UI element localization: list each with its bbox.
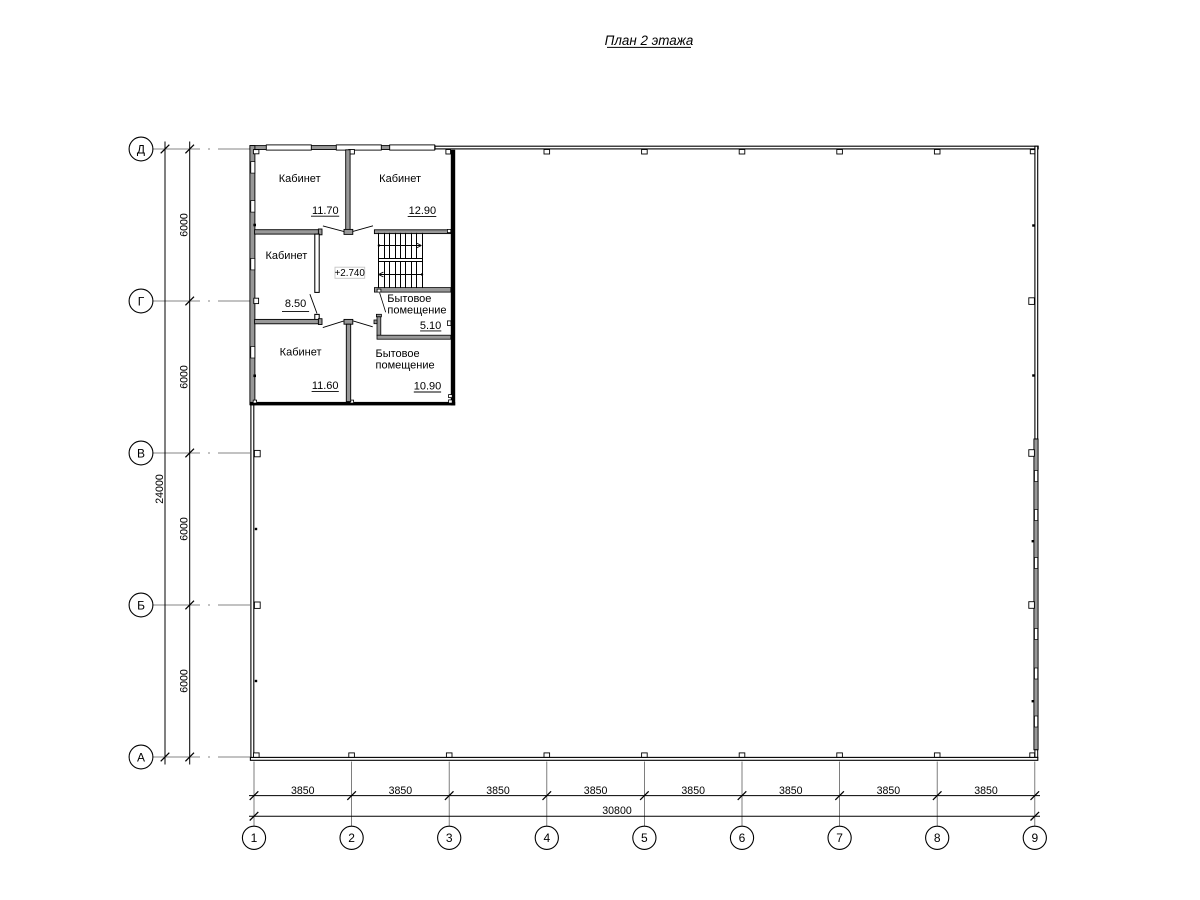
svg-text:6: 6 [739,831,746,845]
svg-text:3850: 3850 [681,785,705,797]
svg-text:6000: 6000 [178,365,190,389]
svg-text:24000: 24000 [154,474,166,504]
svg-text:4: 4 [543,831,550,845]
svg-text:2: 2 [348,831,355,845]
svg-text:Б: Б [137,598,145,612]
svg-text:Кабинет: Кабинет [279,173,321,185]
svg-text:10.90: 10.90 [414,380,442,392]
svg-text:6000: 6000 [178,669,190,693]
svg-text:8.50: 8.50 [285,298,306,310]
svg-text:Кабинет: Кабинет [265,250,307,262]
svg-text:3: 3 [446,831,453,845]
svg-text:3850: 3850 [389,785,413,797]
svg-text:Кабинет: Кабинет [379,173,421,185]
svg-text:3850: 3850 [877,785,901,797]
svg-text:8: 8 [934,831,941,845]
svg-text:7: 7 [836,831,843,845]
svg-text:9: 9 [1031,831,1038,845]
svg-text:В: В [137,446,145,460]
svg-text:Г: Г [138,294,145,308]
svg-text:3850: 3850 [486,785,510,797]
svg-text:11.70: 11.70 [312,205,339,217]
svg-text:План 2 этажа: План 2 этажа [605,33,694,48]
svg-text:Бытовое: Бытовое [376,348,420,360]
svg-text:1: 1 [251,831,258,845]
svg-text:5.10: 5.10 [420,320,441,332]
svg-text:Д: Д [137,142,145,156]
svg-text:Бытовое: Бытовое [387,293,431,305]
svg-text:А: А [137,750,145,764]
svg-text:6000: 6000 [178,213,190,237]
svg-text:3850: 3850 [291,785,315,797]
svg-text:помещение: помещение [387,304,446,316]
svg-text:+2.740: +2.740 [335,268,366,279]
svg-text:12.90: 12.90 [409,205,437,217]
svg-text:3850: 3850 [779,785,803,797]
svg-text:3850: 3850 [584,785,608,797]
svg-text:5: 5 [641,831,648,845]
svg-text:6000: 6000 [178,517,190,541]
svg-text:3850: 3850 [974,785,998,797]
svg-text:30800: 30800 [602,805,632,817]
svg-text:Кабинет: Кабинет [280,346,322,358]
svg-text:помещение: помещение [376,359,435,371]
svg-text:11.60: 11.60 [312,380,339,392]
